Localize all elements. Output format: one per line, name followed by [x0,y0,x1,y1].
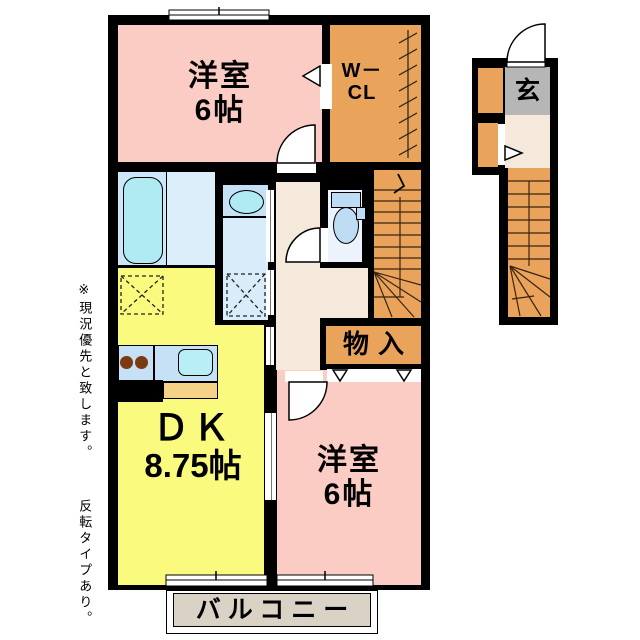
closet-wcl-label: W－ CL [332,60,392,105]
toilet-tank-icon [331,192,361,208]
sliding-door-washroom-lower [266,270,274,315]
stove-burner-icon [120,356,133,369]
genkan: 玄 [505,67,550,115]
sliding-door-dk-western [265,413,276,500]
room-dk-name: ＤＫ [118,408,268,448]
genkan-label: 玄 [515,77,540,105]
room-western-bottom: 洋室 6帖 [277,370,421,585]
room-western-top-name: 洋室 [188,60,252,94]
annex-closet-door [498,124,505,165]
washroom-sink-icon [229,190,264,214]
note-text: ※現況優先と致します。 反転タイプあり。 [77,283,91,633]
note-reverse: 反転タイプあり。 [77,499,92,627]
storage-monoire-label: 物入 [334,330,413,359]
closet-wcl-label-line2: CL [332,82,392,104]
kitchen-counter-front [163,382,218,399]
bathroom-floor [166,172,216,265]
hallway-extension [320,268,368,318]
staircase-annex [508,168,550,317]
room-western-top-size: 6帖 [195,94,246,128]
hallway [276,182,320,370]
annex-hall [505,115,550,168]
room-dk-size: 8.75帖 [118,448,268,485]
toilet-handle-icon [356,207,366,220]
kitchen-sink-icon [178,349,213,376]
storage-monoire: 物入 [326,326,421,364]
room-western-bottom-name: 洋室 [317,444,381,478]
sliding-door-dk-hall [266,327,274,365]
closet-wcl-label-line1: W－ [332,60,392,82]
room-dk-label: ＤＫ 8.75帖 [118,408,268,485]
room-western-top: 洋室 6帖 [118,25,322,162]
kitchen-counter-divider [153,345,155,382]
kitchen-wall-stub [108,380,163,402]
balcony-label: バルコニー [189,596,356,624]
annex-closet [478,123,498,167]
note-priority: ※現況優先と致します。 [77,283,92,461]
staircase-main [374,170,421,318]
shoe-box [478,68,503,113]
closet-doors-band [327,369,421,382]
stove-burner-icon [135,356,148,369]
balcony: バルコニー [173,593,371,627]
room-western-bottom-size: 6帖 [324,478,375,512]
floor-plan: 洋室 6帖 W－ CL 物入 洋室 6帖 ＤＫ 8.75帖 [0,0,640,640]
bathtub [123,177,163,264]
sliding-door-washroom [266,190,274,262]
